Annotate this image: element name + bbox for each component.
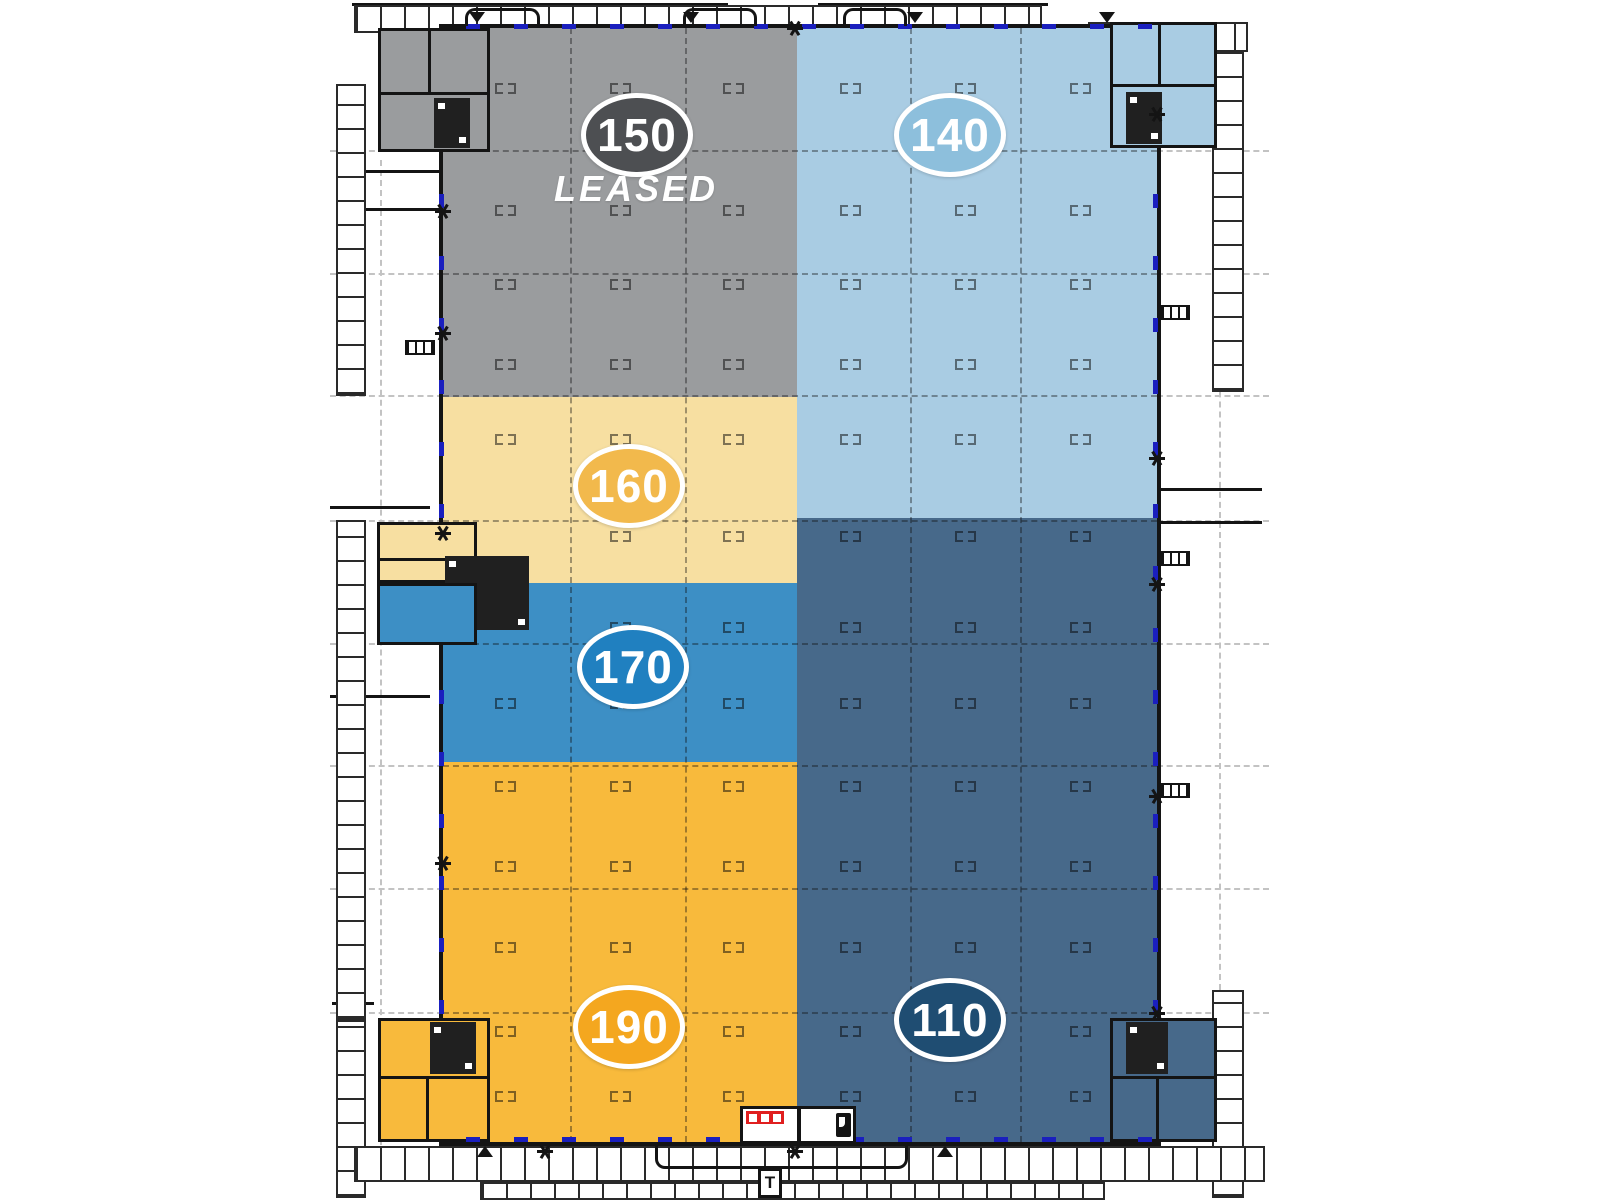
column-marker-left xyxy=(840,83,848,94)
suite-170-badge: 170 xyxy=(577,625,689,709)
column-marker-left xyxy=(723,279,731,290)
column-marker-icon xyxy=(840,1091,861,1102)
column-marker-right xyxy=(968,83,976,94)
office-wall xyxy=(1158,22,1161,84)
office-wall xyxy=(428,28,431,92)
column-marker-left xyxy=(495,1026,503,1037)
column-marker-icon xyxy=(1070,622,1091,633)
column-marker-left xyxy=(723,205,731,216)
column-marker-icon xyxy=(723,781,744,792)
column-marker-icon xyxy=(1070,434,1091,445)
column-marker-icon xyxy=(955,83,976,94)
column-marker-right xyxy=(968,942,976,953)
column-marker-right xyxy=(1083,698,1091,709)
site-curb-line xyxy=(1157,521,1262,524)
fixture-icon xyxy=(1151,133,1158,139)
column-marker-left xyxy=(495,698,503,709)
dock-door-dash xyxy=(1042,1137,1056,1142)
column-marker-left xyxy=(610,861,618,872)
column-marker-icon xyxy=(723,1026,744,1037)
entry-canopy xyxy=(843,8,907,26)
column-marker-right xyxy=(736,698,744,709)
column-marker-icon xyxy=(955,279,976,290)
exit-star-icon xyxy=(435,855,451,871)
column-marker-icon xyxy=(723,861,744,872)
column-marker-left xyxy=(955,359,963,370)
column-marker-left xyxy=(495,83,503,94)
exit-star-icon xyxy=(435,325,451,341)
dock-door-dash xyxy=(1153,814,1158,828)
column-marker-icon xyxy=(610,531,631,542)
electrical-panel-icon xyxy=(746,1111,784,1124)
column-marker-icon xyxy=(723,434,744,445)
column-marker-icon xyxy=(955,434,976,445)
column-marker-left xyxy=(1070,205,1078,216)
column-marker-left xyxy=(840,942,848,953)
door-arrow-icon xyxy=(477,1146,493,1157)
dock-door-dash xyxy=(466,1137,480,1142)
column-marker-right xyxy=(1083,531,1091,542)
column-marker-icon xyxy=(840,359,861,370)
column-marker-right xyxy=(968,698,976,709)
column-marker-icon xyxy=(840,622,861,633)
column-marker-icon xyxy=(955,698,976,709)
dock-door-dash xyxy=(1153,938,1158,952)
column-marker-icon xyxy=(840,942,861,953)
exit-star-icon xyxy=(1149,1005,1165,1021)
column-marker-icon xyxy=(723,698,744,709)
column-marker-icon xyxy=(1070,1091,1091,1102)
column-marker-left xyxy=(840,1091,848,1102)
column-marker-left xyxy=(1070,698,1078,709)
column-marker-icon xyxy=(723,1091,744,1102)
entry-canopy xyxy=(683,8,757,26)
site-grid-line xyxy=(1157,765,1269,767)
column-marker-icon xyxy=(840,781,861,792)
column-marker-right xyxy=(853,942,861,953)
office-wall xyxy=(1156,1076,1159,1142)
dock-door-dash xyxy=(1153,504,1158,518)
column-marker-icon xyxy=(1070,531,1091,542)
column-marker-icon xyxy=(495,942,516,953)
entry-canopy xyxy=(655,1143,908,1169)
column-marker-right xyxy=(736,1026,744,1037)
column-marker-icon xyxy=(495,205,516,216)
office-wall xyxy=(1110,1076,1217,1079)
column-marker-left xyxy=(840,279,848,290)
dock-door-dash xyxy=(706,1137,720,1142)
column-marker-left xyxy=(840,861,848,872)
column-marker-left xyxy=(1070,434,1078,445)
dock-door-dash xyxy=(1090,24,1104,29)
column-marker-left xyxy=(955,279,963,290)
dock-door-dash xyxy=(439,380,444,394)
dock-door-dash xyxy=(439,1000,444,1014)
dock-door-dash xyxy=(994,1137,1008,1142)
exit-star-icon xyxy=(1149,576,1165,592)
column-marker-icon xyxy=(1070,205,1091,216)
column-marker-right xyxy=(1083,781,1091,792)
column-marker-left xyxy=(840,359,848,370)
column-marker-right xyxy=(968,781,976,792)
column-marker-left xyxy=(723,1091,731,1102)
column-marker-icon xyxy=(495,279,516,290)
column-marker-left xyxy=(723,861,731,872)
site-grid-line xyxy=(1157,888,1269,890)
column-marker-icon xyxy=(723,531,744,542)
column-marker-icon xyxy=(1070,698,1091,709)
transformer-box: T xyxy=(758,1168,782,1198)
column-marker-icon xyxy=(955,359,976,370)
column-marker-right xyxy=(508,359,516,370)
column-marker-right xyxy=(736,622,744,633)
column-marker-left xyxy=(495,942,503,953)
column-marker-icon xyxy=(1070,1026,1091,1037)
column-marker-left xyxy=(723,781,731,792)
dock-door-dash xyxy=(439,876,444,890)
fixture-icon xyxy=(438,103,445,109)
column-marker-left xyxy=(840,531,848,542)
stair-icon xyxy=(1160,305,1190,320)
parking-strip xyxy=(336,84,366,396)
column-marker-icon xyxy=(495,781,516,792)
dock-door-dash xyxy=(1153,194,1158,208)
column-marker-icon xyxy=(495,861,516,872)
column-marker-left xyxy=(610,781,618,792)
restroom-core-icon xyxy=(434,98,470,148)
dock-door-dash xyxy=(439,752,444,766)
column-marker-left xyxy=(1070,781,1078,792)
column-marker-left xyxy=(955,942,963,953)
column-marker-icon xyxy=(955,942,976,953)
suite-140-label: 140 xyxy=(910,108,990,162)
door-icon xyxy=(836,1113,851,1137)
suite-170-label: 170 xyxy=(593,640,673,694)
exit-star-icon xyxy=(435,525,451,541)
site-curb-line xyxy=(330,506,430,509)
column-marker-right xyxy=(968,359,976,370)
column-marker-icon xyxy=(495,1091,516,1102)
column-marker-icon xyxy=(495,359,516,370)
column-marker-icon xyxy=(610,942,631,953)
column-marker-right xyxy=(853,698,861,709)
column-marker-left xyxy=(610,434,618,445)
column-marker-right xyxy=(623,861,631,872)
site-grid-line xyxy=(380,160,382,1145)
column-marker-right xyxy=(736,781,744,792)
column-marker-icon xyxy=(955,1091,976,1102)
column-marker-left xyxy=(955,622,963,633)
column-marker-left xyxy=(723,698,731,709)
column-marker-icon xyxy=(840,83,861,94)
dock-door-dash xyxy=(562,24,576,29)
dock-door-dash xyxy=(946,1137,960,1142)
exit-star-icon xyxy=(537,1143,553,1159)
dock-door-dash xyxy=(1153,628,1158,642)
suite-150-status-text: LEASED xyxy=(554,168,718,210)
suite-160-badge: 160 xyxy=(573,444,685,528)
column-marker-icon xyxy=(610,1091,631,1102)
dock-door-dash xyxy=(1153,690,1158,704)
column-marker-icon xyxy=(955,781,976,792)
stair-icon xyxy=(1160,551,1190,566)
column-marker-left xyxy=(495,359,503,370)
column-marker-right xyxy=(1083,205,1091,216)
column-marker-left xyxy=(955,1091,963,1102)
office-wall xyxy=(1110,84,1217,87)
column-marker-left xyxy=(1070,861,1078,872)
fixture-icon xyxy=(459,137,466,143)
entry-canopy xyxy=(465,8,540,26)
column-marker-left xyxy=(840,622,848,633)
column-marker-icon xyxy=(723,359,744,370)
suite-190-label: 190 xyxy=(589,1000,669,1054)
column-marker-icon xyxy=(955,861,976,872)
column-marker-right xyxy=(736,1091,744,1102)
column-marker-right xyxy=(508,781,516,792)
column-marker-left xyxy=(495,279,503,290)
column-marker-left xyxy=(723,942,731,953)
column-marker-right xyxy=(1083,434,1091,445)
column-marker-left xyxy=(495,781,503,792)
column-marker-icon xyxy=(495,1026,516,1037)
building-outline xyxy=(439,24,1161,1146)
restroom-core-icon xyxy=(1126,1022,1168,1074)
suite-150-label: 150 xyxy=(597,108,677,162)
column-marker-icon xyxy=(1070,942,1091,953)
column-marker-icon xyxy=(1070,83,1091,94)
column-marker-right xyxy=(508,205,516,216)
column-marker-right xyxy=(968,279,976,290)
column-marker-icon xyxy=(955,531,976,542)
dock-door-dash xyxy=(802,24,816,29)
dock-door-dash xyxy=(1153,876,1158,890)
dock-door-dash xyxy=(658,1137,672,1142)
column-marker-icon xyxy=(610,359,631,370)
column-marker-right xyxy=(1083,83,1091,94)
column-marker-left xyxy=(723,359,731,370)
dock-door-dash xyxy=(1138,1137,1152,1142)
column-marker-right xyxy=(736,531,744,542)
column-marker-left xyxy=(1070,359,1078,370)
column-marker-right xyxy=(623,531,631,542)
column-marker-icon xyxy=(955,205,976,216)
fixture-icon xyxy=(434,1027,441,1033)
column-marker-right xyxy=(853,1091,861,1102)
fixture-icon xyxy=(1157,1063,1164,1069)
column-marker-left xyxy=(840,434,848,445)
stair-icon xyxy=(405,340,435,355)
column-marker-left xyxy=(840,1026,848,1037)
column-marker-right xyxy=(508,1026,516,1037)
column-marker-left xyxy=(610,279,618,290)
column-marker-right xyxy=(736,205,744,216)
fixture-icon xyxy=(1130,97,1137,103)
column-marker-icon xyxy=(723,205,744,216)
column-marker-icon xyxy=(840,205,861,216)
site-grid-line xyxy=(1157,395,1269,397)
column-marker-icon xyxy=(840,279,861,290)
column-marker-right xyxy=(1083,622,1091,633)
dock-door-dash xyxy=(610,24,624,29)
column-marker-right xyxy=(623,279,631,290)
column-marker-left xyxy=(840,781,848,792)
column-marker-left xyxy=(495,205,503,216)
column-marker-right xyxy=(1083,359,1091,370)
column-marker-left xyxy=(1070,942,1078,953)
column-marker-right xyxy=(736,279,744,290)
switch-dot xyxy=(761,1114,769,1122)
column-marker-right xyxy=(968,531,976,542)
column-marker-right xyxy=(853,83,861,94)
dock-door-dash xyxy=(439,938,444,952)
switch-dot xyxy=(773,1114,781,1122)
column-marker-right xyxy=(968,434,976,445)
column-marker-icon xyxy=(495,434,516,445)
dock-door-dash xyxy=(994,24,1008,29)
column-marker-right xyxy=(508,942,516,953)
column-marker-icon xyxy=(723,279,744,290)
column-marker-right xyxy=(853,205,861,216)
dock-door-dash xyxy=(1153,256,1158,270)
column-marker-left xyxy=(723,1026,731,1037)
exit-star-icon xyxy=(1149,106,1165,122)
column-marker-right xyxy=(508,698,516,709)
column-marker-right xyxy=(968,622,976,633)
column-marker-left xyxy=(723,531,731,542)
column-marker-right xyxy=(853,531,861,542)
column-marker-right xyxy=(736,861,744,872)
column-marker-right xyxy=(853,781,861,792)
suite-140-badge: 140 xyxy=(894,93,1006,177)
column-marker-left xyxy=(955,698,963,709)
column-marker-left xyxy=(955,531,963,542)
column-marker-icon xyxy=(495,698,516,709)
column-marker-icon xyxy=(610,861,631,872)
column-marker-right xyxy=(736,942,744,953)
column-marker-right xyxy=(853,279,861,290)
column-marker-right xyxy=(736,83,744,94)
column-marker-left xyxy=(495,861,503,872)
column-marker-right xyxy=(508,1091,516,1102)
column-marker-icon xyxy=(840,531,861,542)
column-marker-left xyxy=(723,434,731,445)
column-marker-right xyxy=(508,434,516,445)
column-marker-icon xyxy=(1070,359,1091,370)
door-arrow-icon xyxy=(937,1146,953,1157)
column-marker-right xyxy=(508,861,516,872)
column-marker-right xyxy=(968,1091,976,1102)
column-marker-icon xyxy=(495,83,516,94)
office-wall xyxy=(426,1076,429,1142)
column-marker-right xyxy=(1083,279,1091,290)
column-marker-right xyxy=(1083,1026,1091,1037)
column-marker-left xyxy=(955,861,963,872)
dock-door-dash xyxy=(1090,1137,1104,1142)
fixture-icon xyxy=(1130,1027,1137,1033)
column-marker-right xyxy=(853,861,861,872)
dock-door-dash xyxy=(439,690,444,704)
column-marker-left xyxy=(955,205,963,216)
dock-door-dash xyxy=(1153,380,1158,394)
column-marker-left xyxy=(840,205,848,216)
restroom-core-icon xyxy=(430,1022,476,1074)
column-marker-left xyxy=(1070,622,1078,633)
column-marker-left xyxy=(610,83,618,94)
column-marker-left xyxy=(1070,279,1078,290)
column-marker-icon xyxy=(723,942,744,953)
column-marker-right xyxy=(853,1026,861,1037)
fixture-icon xyxy=(449,561,456,567)
column-marker-right xyxy=(1083,942,1091,953)
column-marker-right xyxy=(853,359,861,370)
fixture-icon xyxy=(465,1063,472,1069)
column-marker-left xyxy=(955,781,963,792)
column-marker-left xyxy=(723,83,731,94)
door-swing xyxy=(839,1117,845,1127)
column-marker-right xyxy=(623,359,631,370)
column-marker-right xyxy=(736,434,744,445)
suite-150-badge: 150 xyxy=(581,93,693,177)
column-marker-right xyxy=(623,942,631,953)
door-arrow-icon xyxy=(907,12,923,23)
column-marker-left xyxy=(495,434,503,445)
dock-door-dash xyxy=(658,24,672,29)
column-marker-left xyxy=(610,942,618,953)
column-marker-right xyxy=(623,781,631,792)
column-marker-right xyxy=(853,622,861,633)
exit-star-icon xyxy=(787,20,803,36)
column-marker-icon xyxy=(723,622,744,633)
office-wall xyxy=(378,1076,490,1079)
switch-dot xyxy=(749,1114,757,1122)
suite-160-label: 160 xyxy=(589,459,669,513)
column-marker-left xyxy=(1070,1026,1078,1037)
column-marker-right xyxy=(968,861,976,872)
dock-door-dash xyxy=(1138,24,1152,29)
column-marker-icon xyxy=(723,83,744,94)
site-curb-line xyxy=(1157,488,1262,491)
column-marker-right xyxy=(508,279,516,290)
dock-door-dash xyxy=(439,504,444,518)
column-marker-left xyxy=(1070,531,1078,542)
column-marker-left xyxy=(1070,83,1078,94)
column-marker-right xyxy=(1083,861,1091,872)
column-marker-left xyxy=(955,434,963,445)
column-marker-right xyxy=(736,359,744,370)
dock-door-dash xyxy=(1153,752,1158,766)
column-marker-left xyxy=(610,531,618,542)
column-marker-left xyxy=(610,1091,618,1102)
office-wall xyxy=(378,92,490,95)
site-grid-line xyxy=(1157,643,1269,645)
dock-door-dash xyxy=(1042,24,1056,29)
column-marker-icon xyxy=(610,83,631,94)
dock-door-dash xyxy=(439,256,444,270)
dock-door-dash xyxy=(439,814,444,828)
door-arrow-icon xyxy=(1099,12,1115,23)
column-marker-icon xyxy=(1070,861,1091,872)
office-block xyxy=(377,583,477,645)
dock-door-dash xyxy=(439,442,444,456)
column-marker-right xyxy=(508,83,516,94)
column-marker-left xyxy=(610,359,618,370)
dock-door-dash xyxy=(946,24,960,29)
column-marker-icon xyxy=(1070,279,1091,290)
dock-door-dash xyxy=(562,1137,576,1142)
suite-110-badge: 110 xyxy=(894,978,1006,1062)
parking-strip xyxy=(336,520,366,1020)
